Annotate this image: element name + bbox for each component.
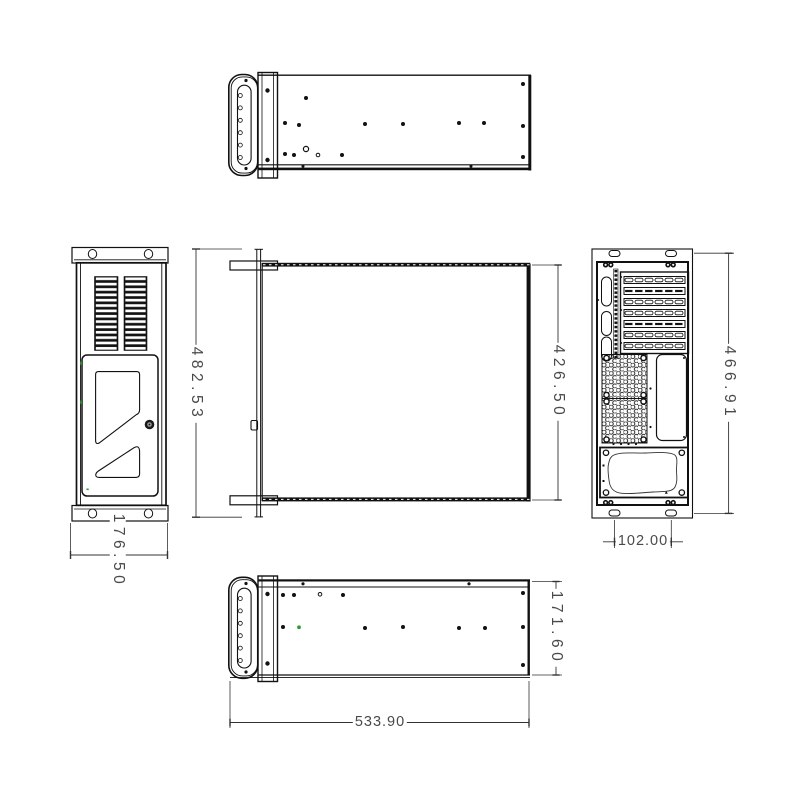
mounting-holes <box>283 82 525 168</box>
blank-cover-panel <box>657 355 687 441</box>
dim-rear-height-label: 466.91 <box>721 344 737 422</box>
door-window-upper <box>96 372 140 444</box>
rack-handle-icon <box>229 75 258 176</box>
door-lock-icon <box>145 420 155 430</box>
front-door <box>80 355 158 496</box>
fan-mesh <box>602 355 652 446</box>
vent-grille <box>95 277 148 351</box>
dim-front-width-label: 176.50 <box>110 512 126 590</box>
dim-rear-holes-label: 102.00 <box>616 534 670 549</box>
front-body <box>77 263 167 506</box>
view-bottom-side <box>229 576 562 728</box>
dim-side-height-label: 171.60 <box>548 589 564 667</box>
view-plan <box>192 249 562 517</box>
view-rear <box>592 249 734 548</box>
psu-cutout-outline <box>608 452 677 493</box>
dim-plan-body-label: 426.50 <box>550 343 566 421</box>
io-knockouts <box>597 269 622 361</box>
dim-side-length-label: 533.90 <box>353 715 407 730</box>
front-panel-edge <box>258 576 278 682</box>
mounting-holes <box>281 582 525 667</box>
chassis-side-panel <box>258 75 531 171</box>
door-window-lower <box>96 447 140 478</box>
psu-bay <box>600 448 688 498</box>
drawing-sheet: 482.53 426.50 466.91 102.00 176.50 171.6… <box>0 0 800 800</box>
drawing-canvas <box>0 0 800 800</box>
chassis-plan-body <box>262 263 531 502</box>
dim-plan-overall-label: 482.53 <box>188 345 204 423</box>
rack-handle-icon <box>229 577 258 678</box>
top-rack-flange <box>72 248 168 264</box>
front-panel-edge <box>258 73 278 179</box>
expansion-slot-area <box>621 272 689 354</box>
view-top-side <box>229 73 532 179</box>
